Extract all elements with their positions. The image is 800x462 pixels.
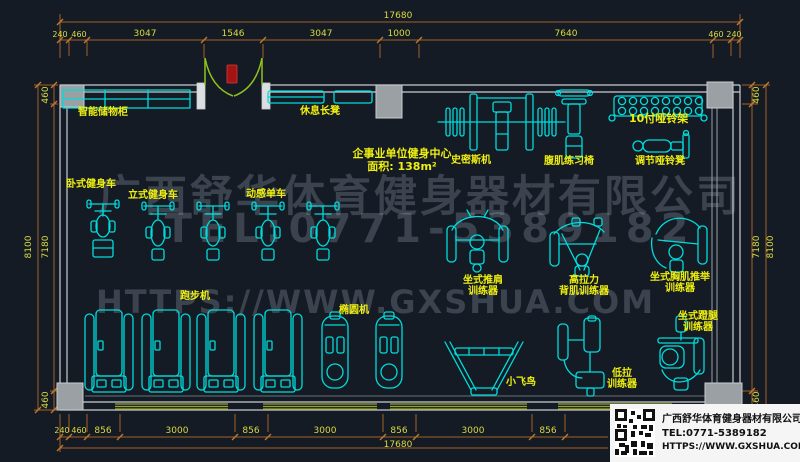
label-adjustable-bench: 调节哑铃凳 (635, 156, 685, 167)
dim-top-seg: 1000 (379, 29, 419, 39)
dim-right-overall: 8100 (766, 225, 776, 269)
treadmill-drawing-4 (254, 310, 302, 392)
rest-bench-drawing (268, 91, 372, 103)
title-block-url: HTTPS://WWW.GXSHUA.COM (662, 442, 800, 452)
elliptical-drawing-2 (376, 312, 402, 388)
treadmill-drawing-3 (197, 310, 245, 392)
dim-top-seg: 460 (68, 30, 90, 40)
dim-right-seg: 460 (752, 73, 762, 117)
smith-machine-drawing (438, 94, 565, 150)
label-ab-bench: 腹肌练习椅 (544, 156, 594, 167)
dim-bottom-seg: 856 (85, 426, 121, 436)
label-recumbent-bike: 卧式健身车 (66, 179, 116, 190)
lat-pulldown-drawing (550, 218, 604, 276)
title-block: 广西舒华体育健身器材有限公司 TEL:0771-5389182 HTTPS://… (610, 404, 800, 462)
label-chest-press: 坐式胸肌推举 训练器 (642, 272, 718, 294)
window-strips (115, 404, 672, 409)
cad-floorplan-canvas: 广西舒华体育健身器材有限公司 TEL:0771-5389182 HTTPS://… (0, 0, 800, 462)
dim-left-overall: 8100 (24, 225, 34, 269)
door-marker (227, 65, 237, 83)
label-elliptical: 椭圆机 (339, 305, 369, 316)
dim-bottom-seg: 856 (379, 426, 419, 436)
dim-top-seg: 7640 (546, 29, 586, 39)
adjustable-bench-drawing (633, 131, 689, 159)
label-leg-press: 坐式蹬腿 训练器 (666, 311, 730, 333)
recumbent-bike-drawing (87, 200, 119, 257)
dim-top-seg: 1546 (213, 29, 253, 39)
spin-bike-drawing-1 (197, 202, 229, 260)
chest-press-drawing (652, 218, 707, 272)
dim-top-seg: 240 (722, 30, 746, 40)
shoulder-press-drawing (447, 210, 508, 272)
label-shoulder-press: 坐式推肩 训练器 (450, 275, 516, 297)
dim-right-seg: 7180 (752, 225, 762, 269)
label-upright-bike: 立式健身车 (128, 190, 178, 201)
dim-top-overall: 17680 (363, 11, 433, 21)
label-rest-bench: 休息长凳 (300, 106, 340, 117)
dim-bottom-overall: 17680 (368, 440, 428, 450)
label-lat-pulldown: 高拉力 背肌训练器 (548, 275, 620, 297)
label-spin-bike: 动感单车 (246, 189, 286, 200)
dim-bottom-seg: 856 (528, 426, 568, 436)
walls (60, 85, 740, 410)
dim-bottom-seg: 3000 (453, 426, 493, 436)
floorplan-drawing (0, 0, 800, 462)
label-dumbbell-rack: 10付哑铃架 (629, 113, 688, 124)
spin-bike-drawing-3 (307, 202, 339, 260)
dimension-lines (34, 14, 770, 452)
title-block-company: 广西舒华体育健身器材有限公司 (662, 414, 800, 425)
dim-left-seg: 460 (41, 73, 51, 117)
title-block-text: 广西舒华体育健身器材有限公司 TEL:0771-5389182 HTTPS://… (662, 414, 800, 452)
dim-top-seg: 3047 (301, 29, 341, 39)
spin-bike-drawing-2 (252, 202, 284, 260)
dim-bottom-seg: 3000 (305, 426, 345, 436)
dim-left-seg: 7180 (41, 225, 51, 269)
dim-left-seg: 460 (41, 378, 51, 422)
entrance-door (205, 58, 262, 96)
label-fly-bird: 小飞鸟 (506, 377, 536, 388)
ab-bench-drawing (556, 90, 593, 158)
dim-top-seg: 3047 (125, 29, 165, 39)
upright-bike-drawing (142, 202, 174, 260)
label-smart-locker: 智能储物柜 (78, 107, 128, 118)
dim-bottom-seg: 3000 (157, 426, 197, 436)
treadmill-drawing-1 (85, 310, 133, 392)
treadmill-drawing-2 (142, 310, 190, 392)
dim-bottom-seg: 856 (231, 426, 271, 436)
label-treadmill: 跑步机 (180, 291, 210, 302)
label-smith-machine: 史密斯机 (451, 155, 491, 166)
elliptical-drawing-1 (322, 312, 348, 388)
label-low-row: 低拉 训练器 (596, 368, 648, 390)
qr-code (615, 409, 655, 457)
title-block-tel: TEL:0771-5389182 (662, 428, 800, 439)
